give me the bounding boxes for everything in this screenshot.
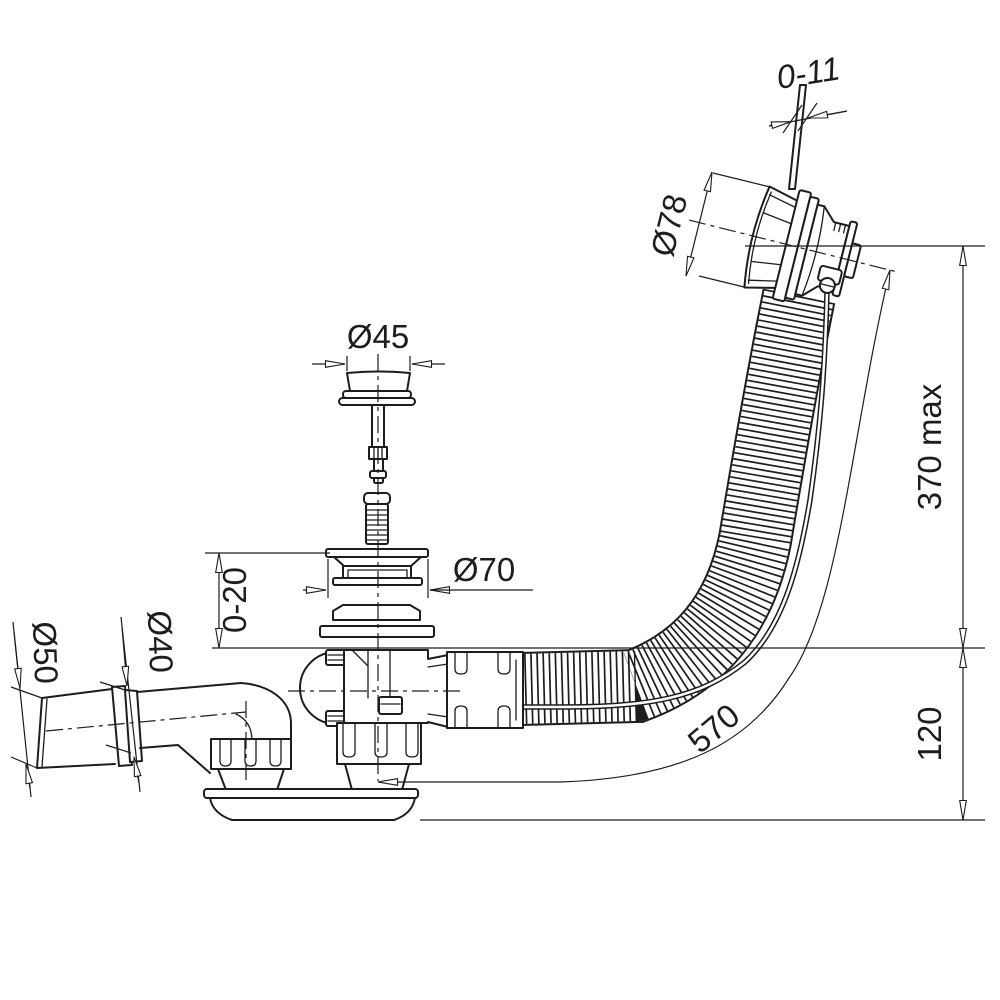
- extension-lines: [205, 246, 985, 820]
- pop-up-plug: [320, 372, 434, 638]
- seal-washer: [333, 605, 420, 620]
- elbow: [241, 683, 291, 741]
- dimension-knob-travel: 0-11: [769, 49, 847, 133]
- waste-tee-body: [344, 650, 448, 727]
- cable-anchor: [379, 697, 402, 714]
- adjuster-screw-head: [364, 493, 390, 504]
- waste-flange: [326, 549, 428, 557]
- dim-label-outlet-outer-diameter: Ø50: [26, 621, 65, 685]
- dimension-deck-thickness: 0-20: [216, 553, 253, 648]
- hose-union-nut: [447, 652, 523, 728]
- dim-label-installation-height: 370 max: [911, 383, 948, 510]
- overflow-pull-rod: [789, 85, 806, 189]
- outlet-centerline: [46, 712, 246, 731]
- dimension-installation-height: 370 max: [911, 246, 963, 648]
- dim-label-hose-length: 570: [681, 696, 747, 760]
- dim-label-deck-thickness: 0-20: [216, 567, 253, 633]
- dim-label-trap-depth: 120: [911, 706, 948, 761]
- backing-washer: [320, 626, 434, 637]
- dim-label-flange-diameter: Ø70: [453, 551, 515, 588]
- corrugated-overflow-hose: [520, 296, 799, 689]
- drawing-canvas: Ø45 Ø70 0-20 370 max 120 570 Ø78 0-11: [0, 0, 1000, 1000]
- dim-label-plug-diameter: Ø45: [347, 318, 409, 355]
- dim-label-knob-travel: 0-11: [774, 49, 843, 95]
- dim-label-outlet-pipe-diameter: Ø40: [141, 610, 180, 674]
- dim-label-overflow-diameter: Ø78: [643, 190, 694, 259]
- technical-drawing: Ø45 Ø70 0-20 370 max 120 570 Ø78 0-11: [0, 0, 1000, 1000]
- dimension-trap-depth: 120: [911, 648, 963, 820]
- trap-cup-rim: [204, 789, 418, 798]
- trap-cup: [210, 798, 415, 820]
- trap-lock-nut: [337, 723, 421, 764]
- dimension-outlet-outer-diameter: Ø50: [11, 621, 65, 797]
